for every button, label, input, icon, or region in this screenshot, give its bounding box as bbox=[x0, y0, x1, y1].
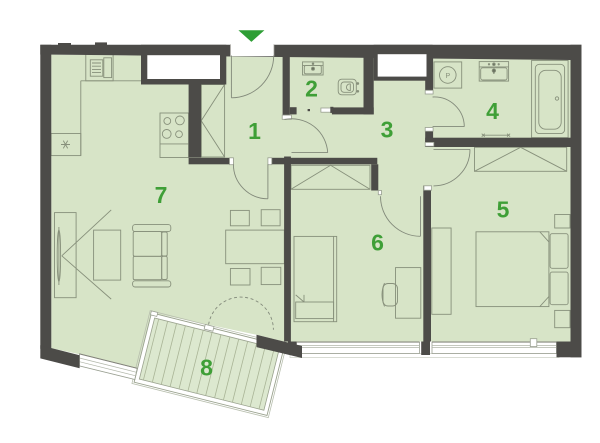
svg-text:7: 7 bbox=[155, 182, 168, 208]
svg-text:8: 8 bbox=[200, 355, 213, 381]
svg-text:6: 6 bbox=[371, 230, 384, 256]
svg-text:4: 4 bbox=[486, 98, 499, 124]
svg-text:3: 3 bbox=[381, 117, 394, 143]
svg-text:P: P bbox=[445, 73, 450, 80]
svg-text:5: 5 bbox=[497, 197, 510, 223]
svg-text:1: 1 bbox=[248, 118, 261, 144]
svg-text:2: 2 bbox=[305, 76, 318, 102]
